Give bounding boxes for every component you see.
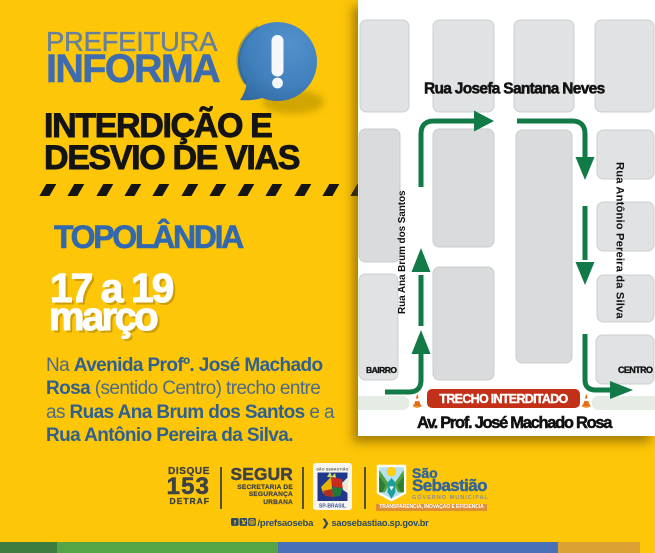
- svg-text:SP-BRASIL: SP-BRASIL: [319, 504, 346, 510]
- svg-text:Av. Prof. José Machado Rosa: Av. Prof. José Machado Rosa: [417, 414, 613, 432]
- svg-text:Rua Josefa Santana Neves: Rua Josefa Santana Neves: [424, 81, 605, 98]
- svg-text:BAIRRO: BAIRRO: [366, 365, 397, 375]
- svg-text:Rua Antônio Pereira da Silva: Rua Antônio Pereira da Silva: [614, 162, 626, 319]
- svg-text:SÃO SEBASTIÃO: SÃO SEBASTIÃO: [316, 467, 348, 472]
- svg-text:Rua Ana Brum dos Santos: Rua Ana Brum dos Santos: [397, 190, 408, 314]
- svg-text:TRECHO INTERDITADO: TRECHO INTERDITADO: [439, 392, 568, 406]
- svg-text:CENTRO: CENTRO: [618, 365, 653, 375]
